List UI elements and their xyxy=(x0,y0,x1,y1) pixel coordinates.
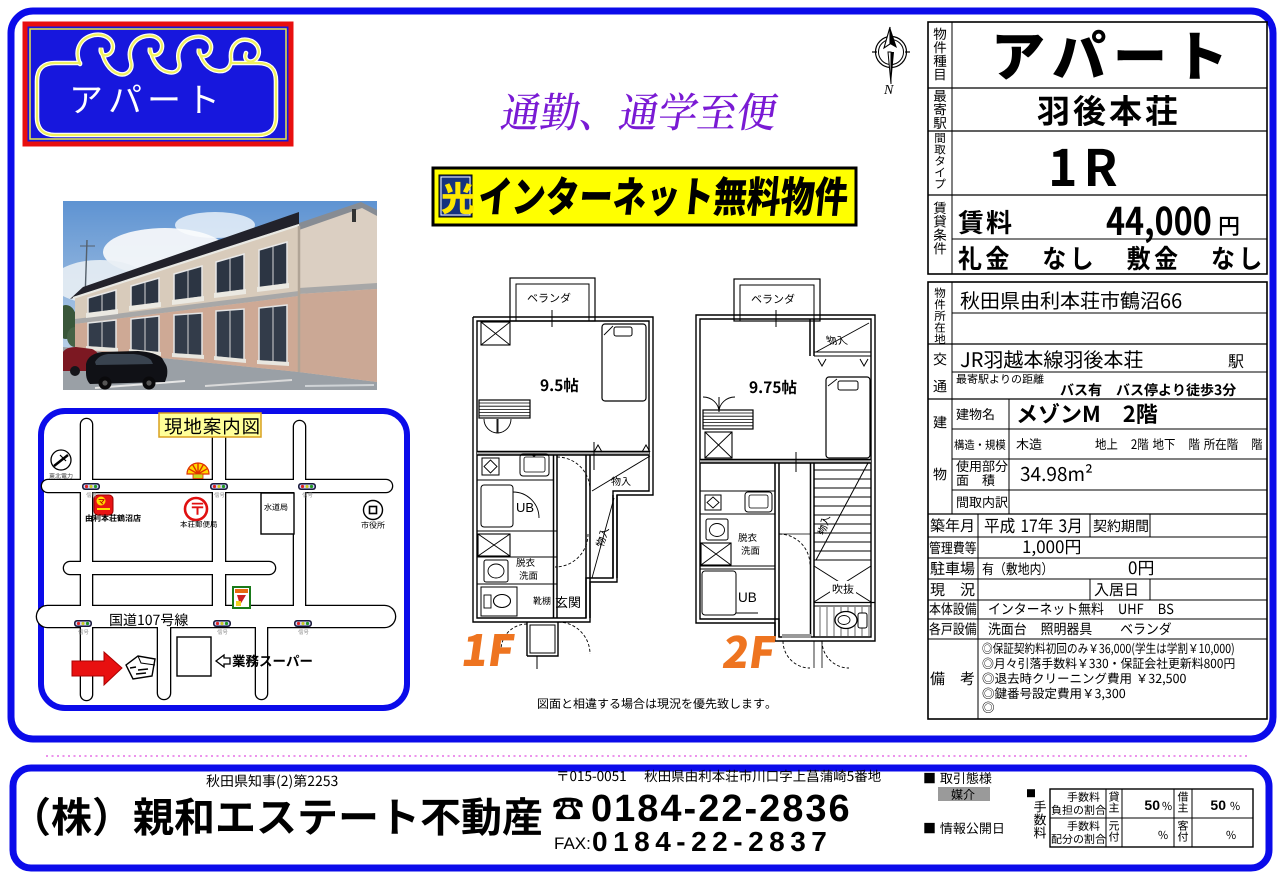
svg-text:0184-22-2836: 0184-22-2836 xyxy=(591,788,852,830)
svg-text:UB: UB xyxy=(738,590,757,605)
svg-text:N: N xyxy=(883,83,894,98)
svg-text:50: 50 xyxy=(1144,797,1160,813)
svg-text:0184-22-2837: 0184-22-2837 xyxy=(592,826,832,857)
svg-text:50: 50 xyxy=(1210,797,1226,813)
svg-text:FAX:: FAX: xyxy=(554,834,591,853)
svg-text:UB: UB xyxy=(516,500,534,515)
